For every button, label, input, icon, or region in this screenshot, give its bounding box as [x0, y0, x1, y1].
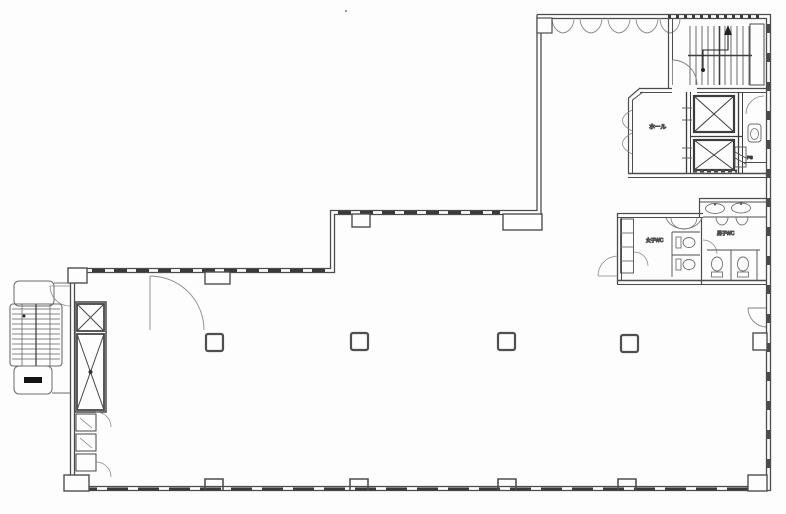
free-column: [351, 333, 368, 350]
junction-column-block: [503, 214, 542, 230]
floor-plan-canvas: ホール: [0, 0, 786, 514]
faucet: [714, 204, 716, 206]
attached-column: [352, 214, 370, 227]
hall-label: ホール: [649, 124, 666, 131]
free-column: [621, 335, 638, 352]
free-column: [498, 333, 515, 350]
stair-dot: [23, 315, 26, 318]
mens-wc-label: 男子WC: [717, 230, 735, 237]
free-column: [206, 334, 223, 351]
floor-plan-image: ホール: [0, 0, 786, 514]
attached-column: [205, 272, 230, 284]
scan-speck: [345, 10, 347, 12]
faucet: [740, 203, 742, 205]
corner-column: [64, 475, 89, 491]
attached-column: [753, 333, 767, 350]
womens-wc-label: 女子WC: [646, 237, 664, 244]
corner-column: [748, 475, 767, 491]
landing-black-bar: [24, 377, 42, 383]
duct-label: PS: [747, 155, 753, 160]
corner-column: [68, 268, 87, 283]
corner-column: [537, 18, 552, 33]
